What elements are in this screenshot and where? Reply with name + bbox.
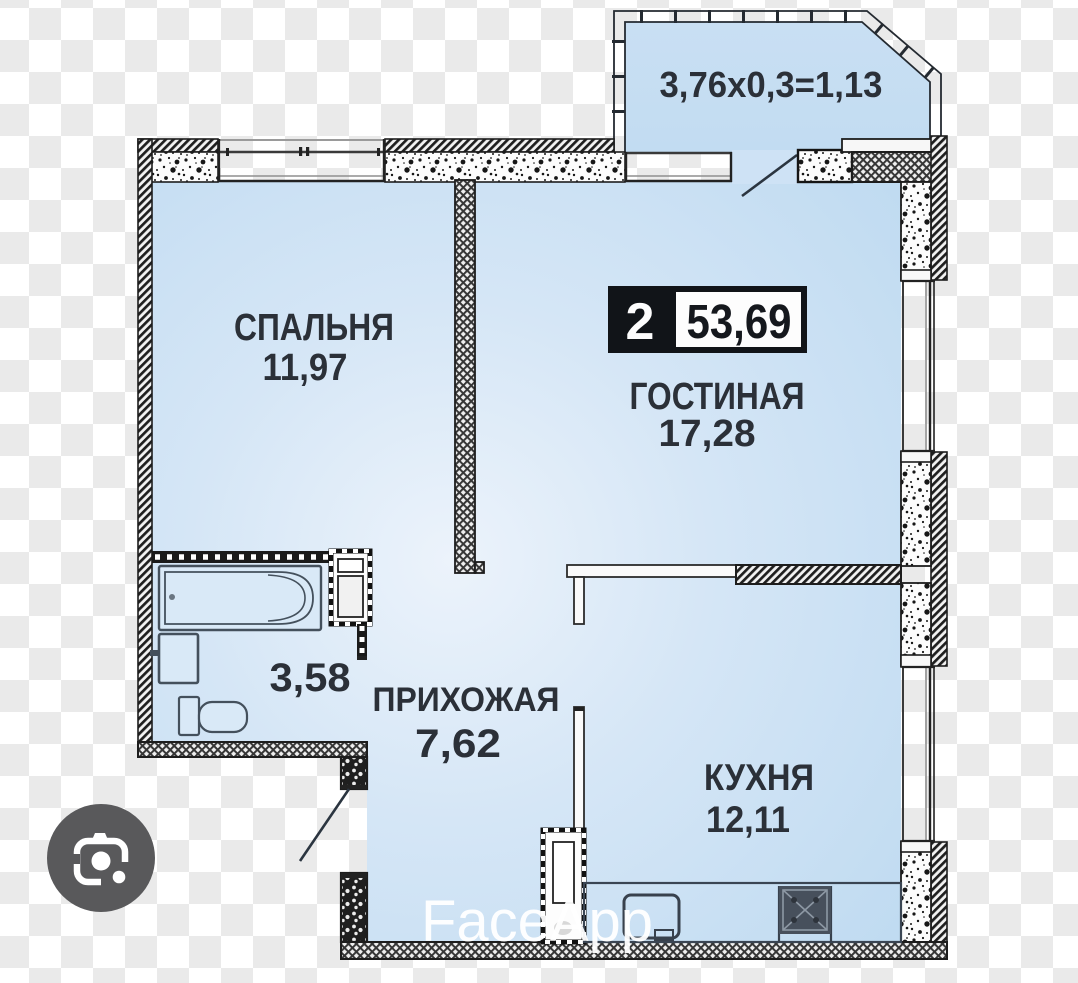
svg-text:17,28: 17,28 (659, 413, 756, 455)
svg-text:ПРИХОЖАЯ: ПРИХОЖАЯ (373, 681, 560, 719)
svg-text:12,11: 12,11 (706, 799, 790, 840)
svg-text:ГОСТИНАЯ: ГОСТИНАЯ (630, 376, 805, 418)
svg-text:53,69: 53,69 (687, 296, 792, 349)
svg-text:7,62: 7,62 (415, 722, 501, 766)
svg-text:FaceApp: FaceApp (421, 889, 653, 954)
svg-text:3,76x0,3=1,13: 3,76x0,3=1,13 (660, 64, 883, 105)
svg-text:2: 2 (626, 293, 655, 351)
svg-text:КУХНЯ: КУХНЯ (704, 757, 814, 798)
svg-text:3,58: 3,58 (270, 656, 351, 700)
svg-text:11,97: 11,97 (263, 347, 348, 389)
svg-text:СПАЛЬНЯ: СПАЛЬНЯ (234, 307, 394, 349)
